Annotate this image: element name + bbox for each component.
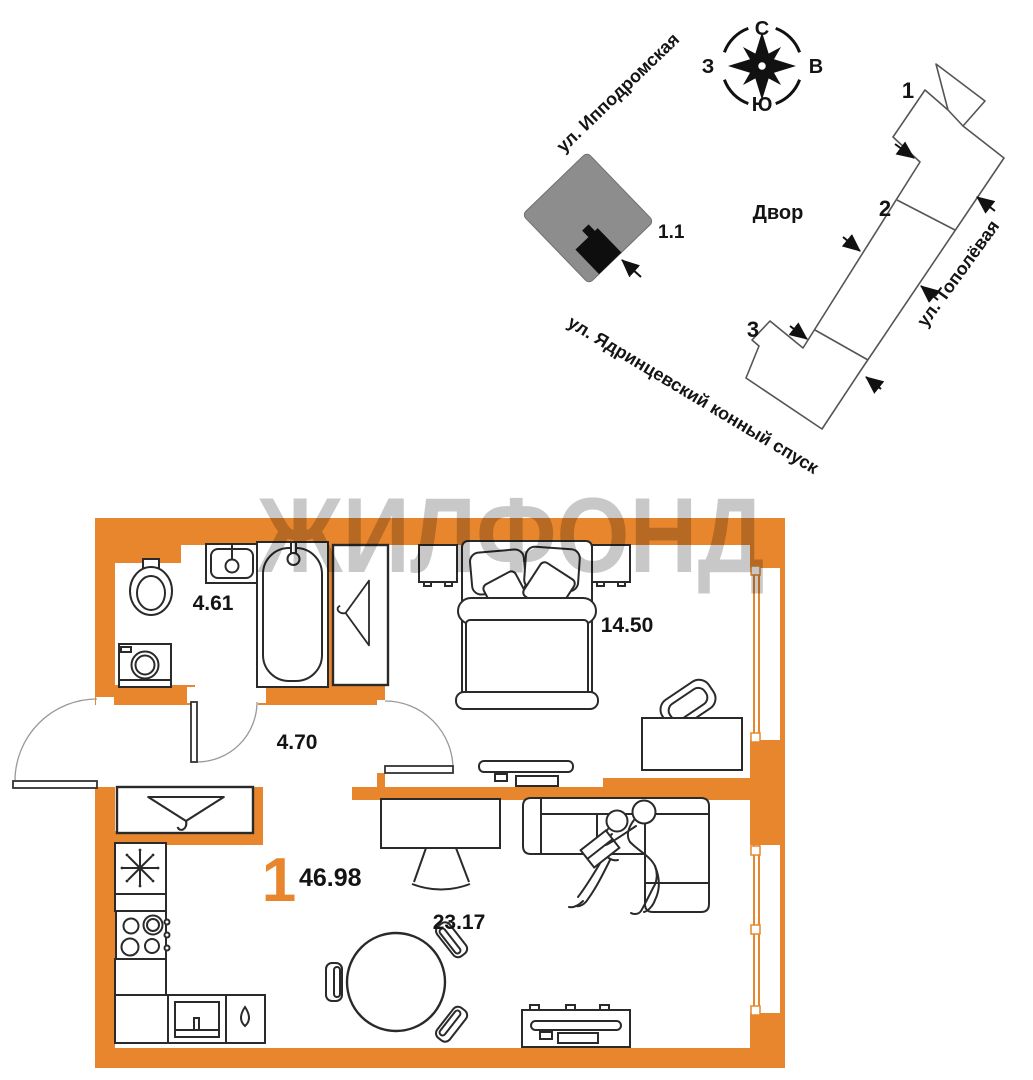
stove-icon: [116, 911, 170, 959]
sink-icon: [206, 544, 258, 583]
highlighted-building: [522, 152, 653, 284]
apartment-listing-plan: С Ю З В ул. Ипподромская ул. Тополёвая у…: [0, 0, 1033, 1080]
chair: [434, 1004, 470, 1044]
dishwasher-icon: [226, 995, 265, 1043]
rooms-count-label: 1: [262, 846, 296, 915]
kitchen-living-area-label: 23.17: [433, 911, 486, 934]
living-desk: [381, 799, 500, 890]
fridge-icon: [115, 843, 166, 894]
compass-west-label: З: [702, 56, 715, 78]
washing-machine-icon: [119, 644, 171, 687]
section-2-label: 2: [879, 196, 891, 221]
street-ippodromskaya-label: ул. Ипподромская: [552, 29, 683, 156]
coat-closet: [117, 787, 253, 833]
bedroom-area-label: 14.50: [601, 614, 654, 637]
hallway-area-label: 4.70: [277, 731, 318, 754]
highlighted-unit-label: 1.1: [658, 222, 685, 243]
plan-svg: С Ю З В ул. Ипподромская ул. Тополёвая у…: [0, 0, 1033, 1080]
courtyard-label: Двор: [753, 202, 804, 224]
toilet-icon: [130, 559, 172, 615]
site-plan: С Ю З В ул. Ипподромская ул. Тополёвая у…: [522, 18, 1004, 478]
entry-door: [13, 699, 97, 788]
bedroom-tv-icon: [479, 761, 573, 786]
entrance-arrow: [622, 260, 641, 277]
kitchen-sink-icon: [168, 995, 226, 1043]
bedroom-door: [385, 701, 453, 773]
bathroom-area-label: 4.61: [193, 592, 234, 615]
compass-south-label: Ю: [752, 94, 773, 116]
chair: [326, 963, 342, 1001]
section-3-label: 3: [747, 317, 759, 342]
compass-north-label: С: [755, 18, 769, 40]
bathroom-door: [191, 702, 257, 762]
watermark: ЖИЛФОНД: [257, 475, 765, 595]
floor-plan: 4.61 4.70 14.50 23.17 1 46.98 ЖИЛФОНД: [13, 475, 785, 1068]
total-area-label: 46.98: [299, 864, 362, 892]
dining-table: [326, 920, 470, 1044]
tv-stand: [522, 1005, 630, 1047]
section-1-label: 1: [902, 78, 914, 103]
compass-east-label: В: [809, 56, 823, 78]
bedroom-desk: [642, 675, 742, 770]
